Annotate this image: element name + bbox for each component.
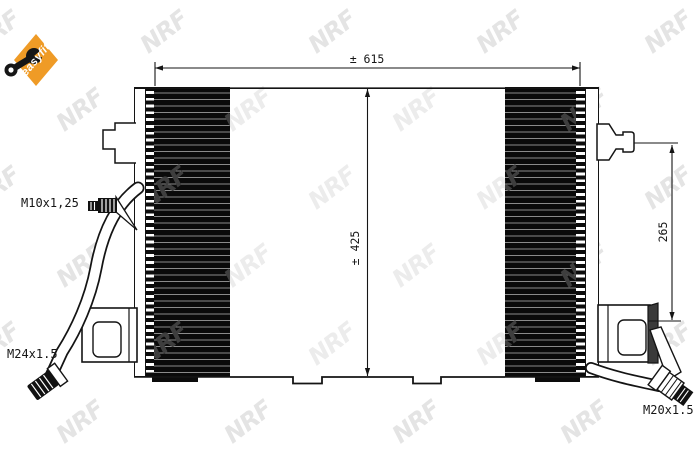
- side-tank-right: [585, 87, 599, 377]
- nrf-watermark: NRF: [555, 395, 613, 449]
- nrf-watermark: NRF: [230, 239, 277, 293]
- nrf-watermark: NRF: [51, 239, 109, 293]
- nrf-watermark: NRF: [135, 5, 193, 59]
- nrf-watermark: NRF: [51, 395, 109, 449]
- nrf-watermark: NRF: [154, 161, 193, 215]
- core-fins-left: [145, 87, 154, 377]
- nrf-watermark: NRF: [303, 317, 361, 371]
- port-label-m20: M20x1.5: [643, 403, 694, 417]
- nrf-watermark: NRF: [639, 317, 697, 371]
- nrf-watermark: NRF: [471, 161, 505, 215]
- bottom-tab-right: [535, 377, 580, 382]
- nrf-watermark: NRF: [471, 5, 529, 59]
- glare-area: NRFNRFNRFNRFNRFNRFNRFNRF: [230, 87, 505, 377]
- nrf-watermark: NRF: [387, 395, 445, 449]
- bottom-tab-left: [152, 377, 198, 382]
- nrf-watermark: NRF: [230, 87, 277, 137]
- nrf-watermark: NRF: [387, 239, 445, 293]
- core-fins-right: [576, 87, 585, 377]
- nrf-watermark: NRF: [387, 87, 445, 137]
- port-label-m24: M24x1.5: [7, 347, 58, 361]
- nrf-watermark: NRF: [471, 317, 505, 371]
- nrf-watermark: NRF: [639, 5, 697, 59]
- port-label-m10: M10x1,25: [21, 196, 79, 210]
- nrf-watermark: NRF: [555, 87, 576, 137]
- side-tank-left: [134, 87, 146, 377]
- nrf-watermark: NRF: [154, 317, 193, 371]
- dimension-side-label: 265: [656, 202, 670, 262]
- nrf-watermark: NRF: [303, 161, 361, 215]
- dimension-height-label: ± 425: [348, 218, 362, 278]
- nrf-watermark: NRF: [0, 317, 25, 371]
- nrf-watermark: NRF: [303, 5, 361, 59]
- nrf-watermark: NRF: [219, 395, 277, 449]
- product-image: NRFNRFNRFNRFNRFNRFNRFNRFNRFNRFNRFNRFNRFN…: [0, 0, 699, 459]
- nrf-watermark: NRF: [555, 239, 576, 293]
- dimension-width-label: ± 615: [317, 52, 417, 66]
